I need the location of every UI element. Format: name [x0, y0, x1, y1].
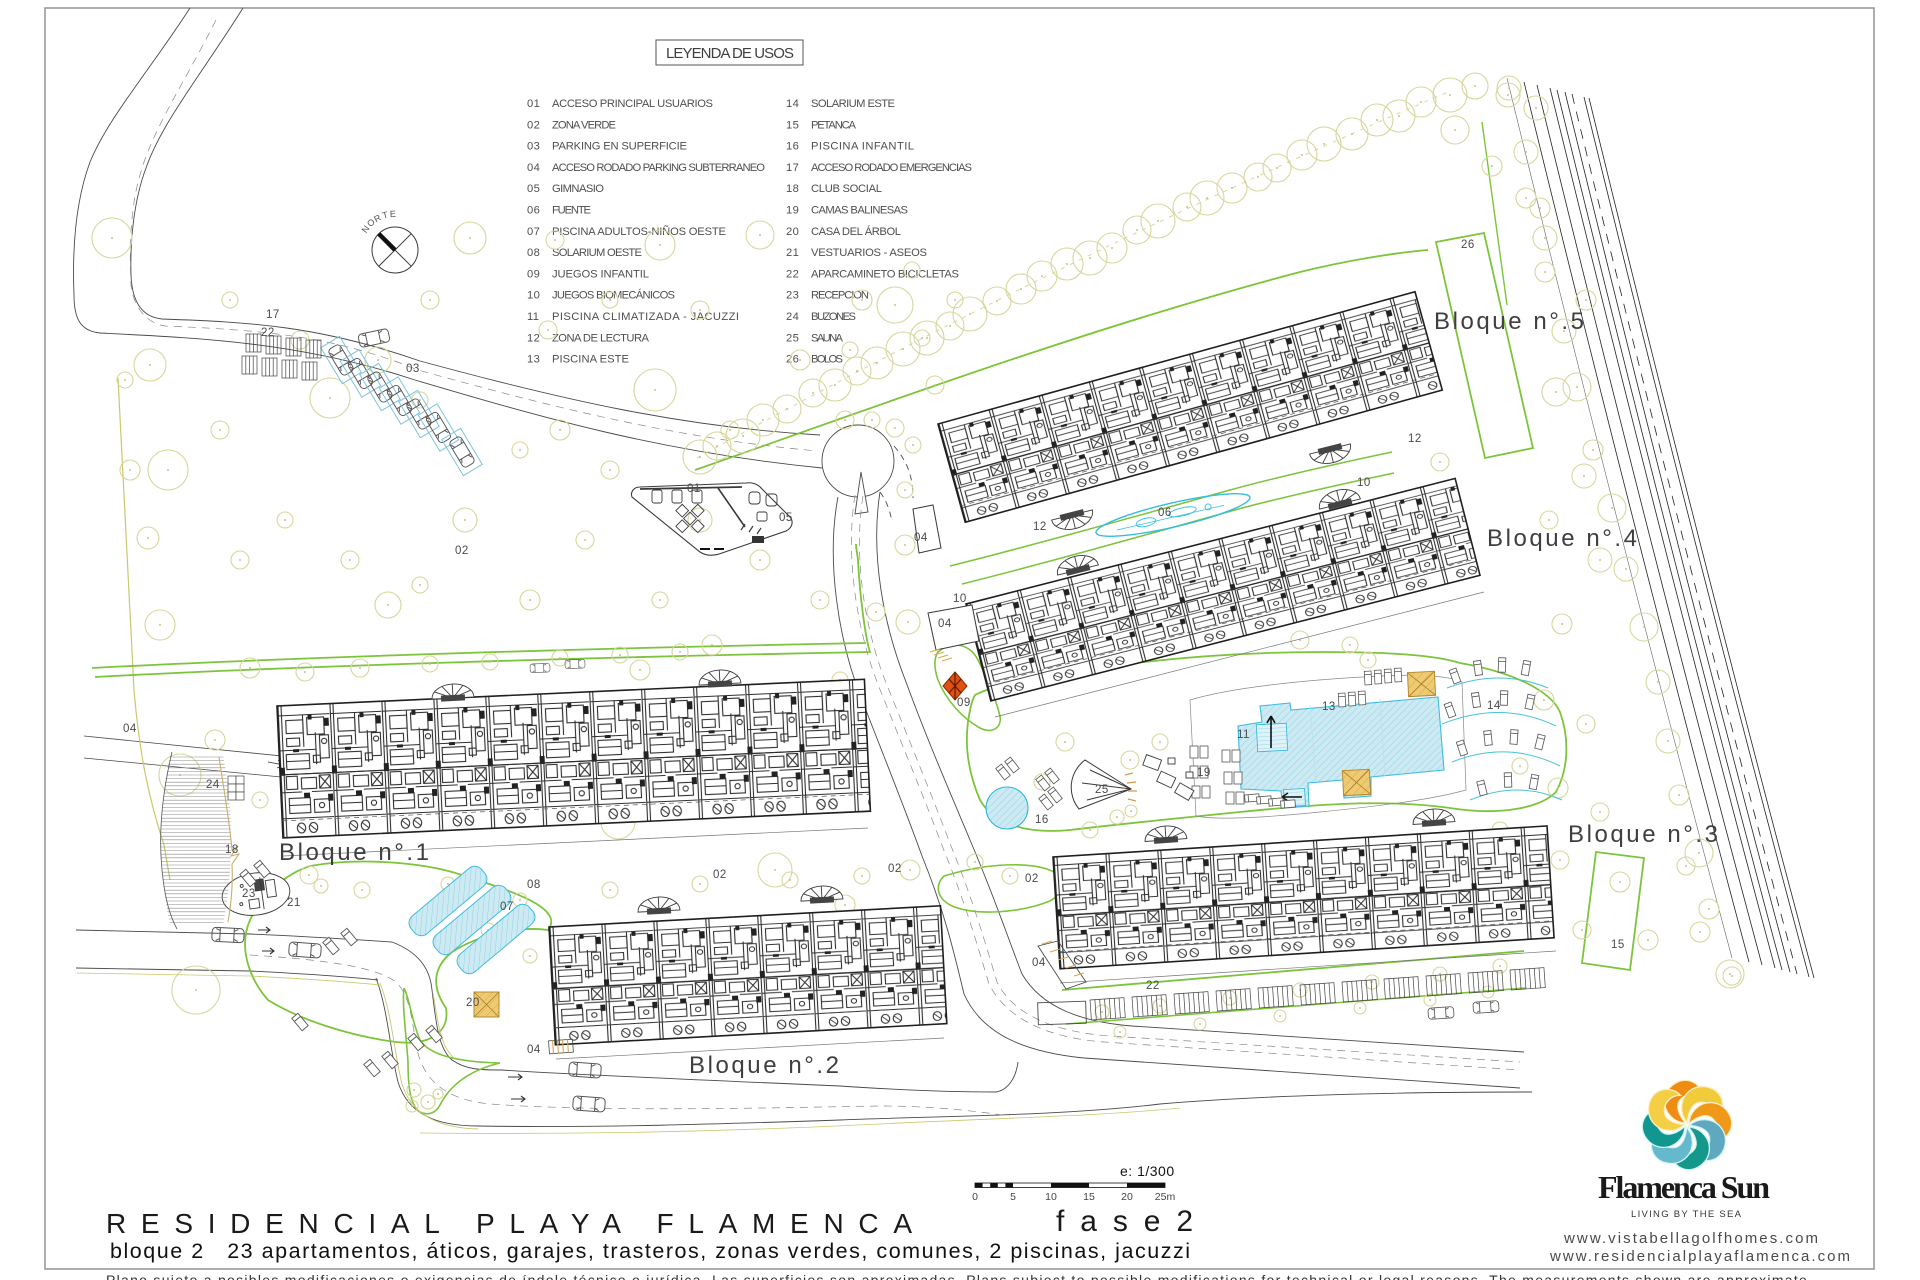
svg-text:ZONA VERDE: ZONA VERDE: [552, 119, 616, 131]
svg-text:PARKING EN SUPERFICIE: PARKING EN SUPERFICIE: [552, 141, 687, 153]
svg-text:VESTUARIOS - ASEOS: VESTUARIOS - ASEOS: [811, 247, 927, 259]
svg-text:22: 22: [1146, 980, 1160, 992]
svg-text:16: 16: [1035, 814, 1049, 826]
svg-text:13: 13: [527, 354, 540, 366]
svg-text:04: 04: [938, 618, 952, 630]
svg-text:05: 05: [779, 512, 793, 524]
svg-text:PISCINA CLIMATIZADA - JACUZZI: PISCINA CLIMATIZADA - JACUZZI: [552, 311, 739, 323]
svg-text:02: 02: [888, 863, 902, 875]
svg-text:04: 04: [527, 1044, 541, 1056]
svg-text:09: 09: [957, 697, 971, 709]
svg-text:FUENTE: FUENTE: [552, 205, 591, 217]
svg-text:15: 15: [786, 119, 799, 131]
svg-text:SOLARIUM ESTE: SOLARIUM ESTE: [811, 98, 895, 110]
svg-text:25: 25: [786, 332, 799, 344]
svg-text:BOLOS: BOLOS: [811, 354, 843, 366]
svg-text:03: 03: [406, 363, 420, 375]
svg-text:01: 01: [527, 98, 540, 110]
svg-text:24: 24: [786, 311, 799, 323]
svg-text:ACCESO RODADO EMERGENCIAS: ACCESO RODADO EMERGENCIAS: [811, 162, 972, 174]
svg-text:04: 04: [123, 723, 137, 735]
svg-text:20: 20: [466, 997, 480, 1009]
svg-text:03: 03: [527, 141, 540, 153]
svg-text:23: 23: [786, 290, 799, 302]
svg-text:Plano sujeto a posibles modifi: Plano sujeto a posibles modificaciones o…: [106, 1272, 1812, 1280]
svg-text:02: 02: [455, 545, 469, 557]
svg-text:16: 16: [786, 141, 799, 153]
svg-text:CLUB SOCIAL: CLUB SOCIAL: [811, 183, 882, 195]
svg-text:10: 10: [1045, 1191, 1057, 1203]
svg-text:APARCAMINETO BICICLETAS: APARCAMINETO BICICLETAS: [811, 268, 959, 280]
svg-text:e: 1/300: e: 1/300: [1120, 1163, 1175, 1179]
svg-text:PISCINA ADULTOS-NIÑOS OESTE: PISCINA ADULTOS-NIÑOS OESTE: [552, 225, 726, 238]
svg-text:23: 23: [242, 888, 256, 900]
svg-text:CAMAS BALINESAS: CAMAS BALINESAS: [811, 205, 908, 217]
svg-text:14: 14: [786, 98, 799, 110]
svg-text:JUEGOS BIOMECÁNICOS: JUEGOS BIOMECÁNICOS: [552, 289, 675, 302]
svg-text:25m: 25m: [1155, 1191, 1176, 1203]
svg-text:11: 11: [1237, 729, 1250, 741]
svg-text:ACCESO PRINCIPAL USUARIOS: ACCESO PRINCIPAL USUARIOS: [552, 98, 713, 110]
svg-text:17: 17: [786, 162, 799, 174]
svg-text:02: 02: [1025, 873, 1039, 885]
svg-text:20: 20: [786, 226, 799, 238]
svg-text:CASA DEL ÁRBOL: CASA DEL ÁRBOL: [811, 225, 901, 238]
svg-text:25: 25: [1095, 784, 1109, 796]
svg-text:LIVING BY THE SEA: LIVING BY THE SEA: [1631, 1209, 1742, 1220]
svg-text:02: 02: [527, 119, 540, 131]
svg-text:SOLARIUM OESTE: SOLARIUM OESTE: [552, 247, 642, 259]
svg-text:10: 10: [1357, 477, 1371, 489]
svg-text:SAUNA: SAUNA: [811, 332, 844, 344]
svg-text:04: 04: [1032, 957, 1046, 969]
svg-text:07: 07: [527, 226, 540, 238]
svg-text:BUZONES: BUZONES: [811, 311, 856, 323]
svg-text:17: 17: [266, 309, 280, 321]
svg-text:0: 0: [972, 1191, 978, 1203]
svg-text:PISCINA ESTE: PISCINA ESTE: [552, 354, 629, 366]
svg-text:18: 18: [786, 183, 799, 195]
svg-text:26: 26: [786, 354, 799, 366]
svg-text:15: 15: [1083, 1191, 1095, 1203]
svg-text:bloque 2 23 apartamentos, át: bloque 2 23 apartamentos, áticos, garaje…: [110, 1239, 1190, 1263]
svg-text:JUEGOS INFANTIL: JUEGOS INFANTIL: [552, 268, 649, 280]
svg-text:5: 5: [1010, 1191, 1016, 1203]
svg-text:05: 05: [527, 183, 540, 195]
svg-text:Bloque n°.5: Bloque n°.5: [1434, 308, 1584, 335]
svg-text:09: 09: [527, 268, 540, 280]
svg-text:Bloque n°.2: Bloque n°.2: [689, 1052, 839, 1079]
svg-text:06: 06: [527, 205, 540, 217]
svg-text:22: 22: [786, 268, 799, 280]
svg-text:19: 19: [1197, 767, 1211, 779]
svg-text:26: 26: [1461, 239, 1475, 251]
svg-text:01: 01: [687, 483, 701, 495]
svg-text:18: 18: [225, 844, 239, 856]
svg-text:13: 13: [1322, 701, 1336, 713]
svg-text:www.residencialplayaflamenca.c: www.residencialplayaflamenca.com: [1549, 1248, 1850, 1265]
svg-text:ZONA DE LECTURA: ZONA DE LECTURA: [552, 332, 650, 344]
svg-text:04: 04: [527, 162, 540, 174]
svg-text:14: 14: [1487, 700, 1501, 712]
svg-text:www.vistabellagolfhomes.com: www.vistabellagolfhomes.com: [1563, 1230, 1818, 1247]
svg-text:15: 15: [1611, 939, 1625, 951]
svg-text:21: 21: [786, 247, 799, 259]
svg-text:21: 21: [287, 897, 301, 909]
svg-text:RECEPCION: RECEPCION: [811, 290, 869, 302]
svg-text:LEYENDA DE USOS: LEYENDA DE USOS: [666, 45, 794, 62]
svg-text:10: 10: [953, 593, 967, 605]
svg-text:Bloque n°.1: Bloque n°.1: [279, 839, 429, 866]
svg-text:ACCESO RODADO PARKING SUBTERRA: ACCESO RODADO PARKING SUBTERRANEO: [552, 162, 765, 174]
svg-text:08: 08: [527, 247, 540, 259]
svg-text:07: 07: [500, 901, 514, 913]
svg-text:04: 04: [914, 532, 928, 544]
svg-text:PISCINA INFANTIL: PISCINA INFANTIL: [811, 141, 914, 153]
svg-text:12: 12: [527, 332, 540, 344]
svg-text:Bloque n°.3: Bloque n°.3: [1568, 821, 1718, 848]
svg-text:E: E: [390, 209, 397, 219]
svg-text:24: 24: [206, 779, 220, 791]
svg-text:GIMNASIO: GIMNASIO: [552, 183, 604, 195]
svg-text:08: 08: [527, 879, 541, 891]
svg-text:Bloque n°.4: Bloque n°.4: [1487, 525, 1637, 552]
svg-text:12: 12: [1033, 521, 1047, 533]
svg-text:02: 02: [713, 869, 727, 881]
svg-text:06: 06: [1158, 507, 1172, 519]
svg-text:12: 12: [1408, 433, 1422, 445]
svg-text:Flamenca Sun: Flamenca Sun: [1598, 1169, 1770, 1205]
svg-text:22: 22: [261, 327, 275, 339]
svg-text:10: 10: [527, 290, 540, 302]
svg-text:20: 20: [1121, 1191, 1133, 1203]
svg-text:11: 11: [527, 311, 539, 323]
svg-text:19: 19: [786, 205, 799, 217]
svg-text:PETANCA: PETANCA: [811, 119, 857, 131]
